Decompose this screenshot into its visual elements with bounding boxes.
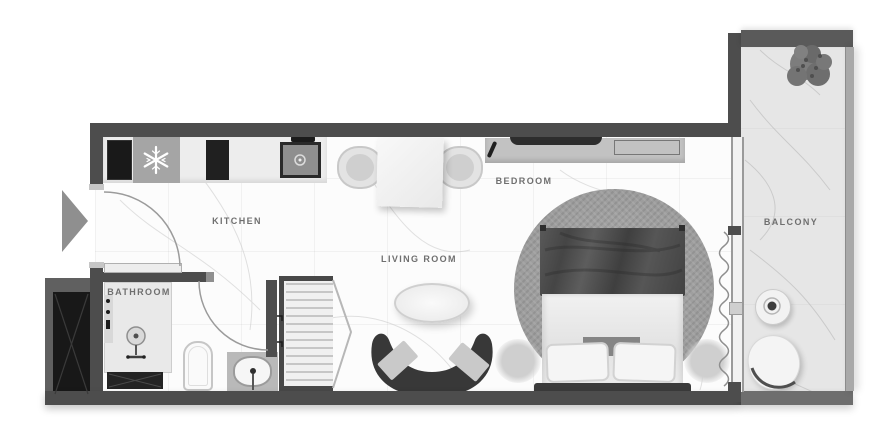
kitchen-label: KITCHEN [212,216,262,226]
bedpost [540,225,546,231]
toilet-icon [183,341,213,391]
dining-chair-seat [346,154,374,181]
bathroom-vanity [107,372,163,389]
shower-control-panel [104,295,113,343]
balcony-railing [845,47,854,391]
bathroom-wall [95,272,206,282]
tv-icon [510,136,602,145]
floor-plan: KITCHEN LIVING ROOM BEDROOM BATHROOM BAL… [0,0,890,440]
pillow-right [612,342,676,383]
sliding-glass-door [731,137,744,392]
wall-left-lower [90,268,103,398]
kitchen-sink-icon [280,142,321,178]
shaft-hatch [53,292,90,397]
wardrobe [279,276,333,391]
entrance-arrow-icon [62,190,88,252]
bathroom-door-leaf [266,280,277,357]
nightstand-left [495,339,541,383]
dining-chair-seat [446,154,474,181]
desk-tray [614,140,680,155]
wall-top [90,123,741,137]
bathroom-wall-endcap [206,272,214,282]
living-room-label: LIVING ROOM [381,254,457,264]
dining-table [376,136,444,208]
coffee-table [394,283,470,323]
balcony-left-wall [728,33,741,137]
bathroom-label: BATHROOM [107,287,171,297]
balcony-label: BALCONY [764,217,818,227]
balcony-table [755,289,791,325]
glass-door-post [728,382,741,402]
curved-sofa [367,320,497,398]
wall-left-upper [90,123,103,185]
glass-door-mullion [728,226,741,235]
bed-duvet [540,228,685,296]
wall-bottom [45,391,741,405]
oven-icon [107,140,132,180]
door-jamb [89,184,104,190]
stove-icon [206,140,229,180]
bathroom-faucet-stem [252,374,254,390]
glass-door-handle [729,302,743,315]
dining-chair-right [437,146,483,189]
balcony-wall-bottom [741,391,853,405]
bedroom-label: BEDROOM [496,176,553,186]
balcony-top-wall [741,30,853,47]
nightstand-right [684,339,730,383]
entrance-door-leaf [104,263,182,273]
bedpost [679,225,685,231]
wardrobe-clothes-rail [286,283,333,384]
pillow-left [545,342,609,383]
toilet-bowl [188,346,208,386]
snowflake-fridge-icon [133,137,180,183]
